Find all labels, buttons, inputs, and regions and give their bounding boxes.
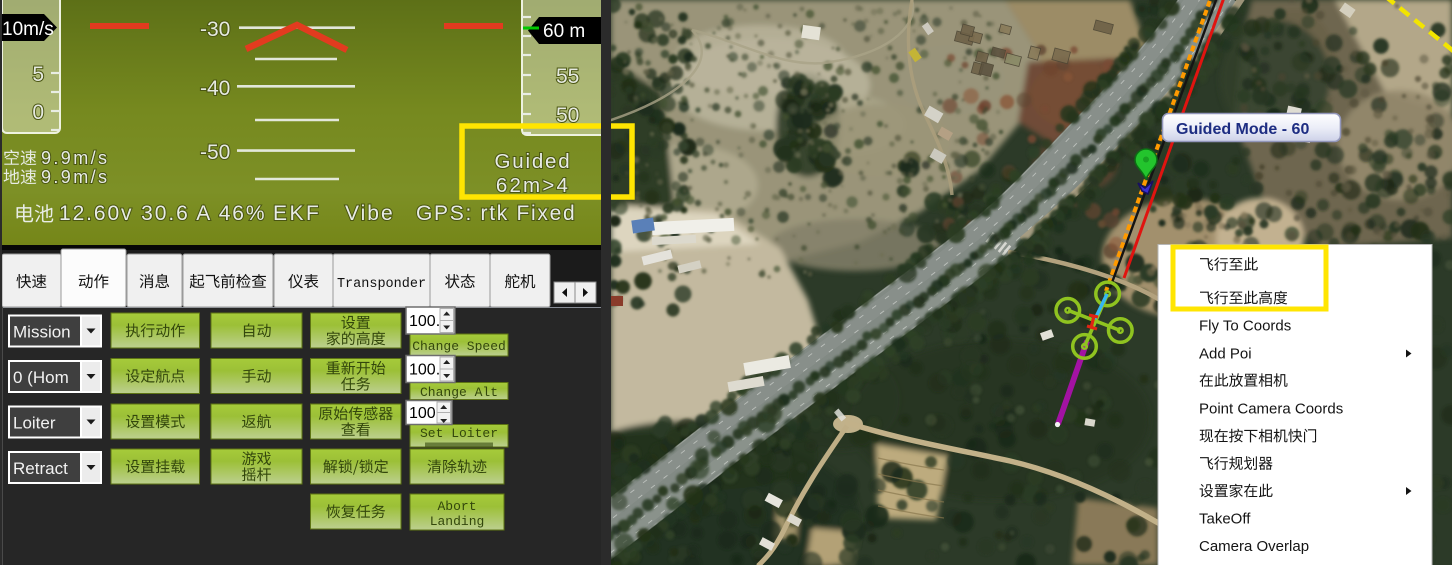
- svg-text:Landing: Landing: [430, 514, 485, 529]
- svg-text:Set Loiter: Set Loiter: [420, 426, 498, 441]
- svg-text:Add Poi: Add Poi: [1199, 346, 1252, 363]
- svg-text:EKF: EKF: [273, 202, 321, 225]
- svg-text:TakeOff: TakeOff: [1199, 511, 1251, 528]
- svg-text:55: 55: [556, 65, 579, 88]
- svg-text:Camera Overlap: Camera Overlap: [1199, 538, 1309, 555]
- svg-text:Fly To Coords: Fly To Coords: [1199, 318, 1291, 335]
- svg-text:-50: -50: [200, 141, 230, 164]
- svg-text:Transponder: Transponder: [337, 277, 426, 292]
- svg-text:Change Alt: Change Alt: [420, 385, 498, 400]
- svg-text:62m>4: 62m>4: [496, 174, 570, 197]
- svg-text:Abort: Abort: [437, 499, 476, 514]
- svg-text:100.: 100.: [409, 313, 440, 330]
- svg-text:5: 5: [32, 63, 44, 86]
- svg-text:12.60v 30.6 A 46%: 12.60v 30.6 A 46%: [59, 202, 266, 225]
- svg-text:-30: -30: [200, 18, 230, 41]
- svg-text:60 m: 60 m: [543, 21, 585, 42]
- svg-text:GPS: rtk Fixed: GPS: rtk Fixed: [416, 202, 576, 225]
- svg-text:0 (Hom: 0 (Hom: [13, 368, 69, 387]
- svg-text:0: 0: [32, 101, 44, 124]
- svg-text:9.9m/s: 9.9m/s: [41, 148, 109, 168]
- svg-text:9.9m/s: 9.9m/s: [41, 167, 109, 187]
- svg-text:100: 100: [409, 405, 436, 422]
- svg-text:100.: 100.: [409, 362, 440, 379]
- svg-text:Mission: Mission: [13, 323, 71, 342]
- svg-text:Loiter: Loiter: [13, 414, 56, 433]
- svg-text:Retract: Retract: [13, 459, 68, 478]
- svg-text:Guided Mode - 60: Guided Mode - 60: [1176, 121, 1309, 138]
- svg-text:Vibe: Vibe: [345, 202, 395, 225]
- svg-text:Change Speed: Change Speed: [412, 339, 506, 354]
- svg-text:Point Camera Coords: Point Camera Coords: [1199, 401, 1343, 418]
- svg-text:-40: -40: [200, 77, 230, 100]
- svg-text:10m/s: 10m/s: [2, 19, 54, 40]
- svg-text:Guided: Guided: [495, 150, 572, 173]
